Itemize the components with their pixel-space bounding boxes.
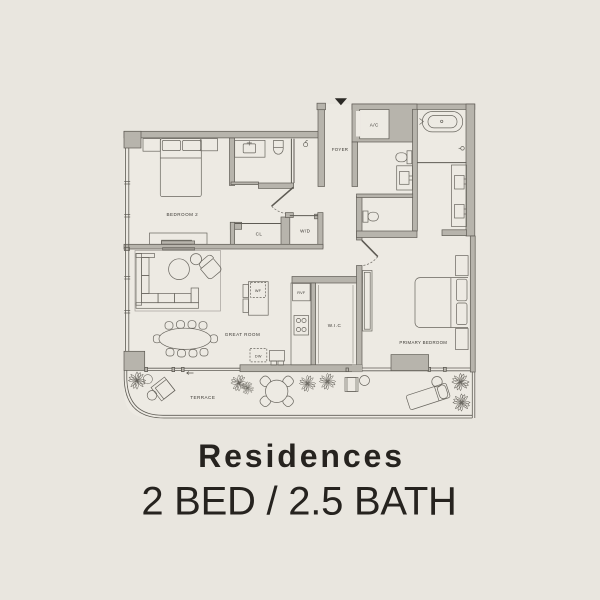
svg-text:2 BED / 2.5 BATH: 2 BED / 2.5 BATH <box>141 480 456 524</box>
svg-text:W/D: W/D <box>300 228 311 233</box>
svg-text:WF: WF <box>255 289 262 293</box>
svg-text:DW: DW <box>255 354 262 358</box>
svg-text:PRIMARY BEDROOM: PRIMARY BEDROOM <box>399 340 447 345</box>
svg-text:W.I.C: W.I.C <box>328 323 342 328</box>
svg-text:RVF: RVF <box>297 291 306 295</box>
svg-text:GREAT ROOM: GREAT ROOM <box>225 332 260 337</box>
svg-text:CL: CL <box>256 231 263 236</box>
svg-text:A/C: A/C <box>370 122 379 127</box>
svg-text:BEDROOM 2: BEDROOM 2 <box>166 212 198 217</box>
svg-text:TERRACE: TERRACE <box>190 395 215 400</box>
svg-text:FOYER: FOYER <box>332 147 348 152</box>
svg-text:Residences: Residences <box>198 438 405 474</box>
